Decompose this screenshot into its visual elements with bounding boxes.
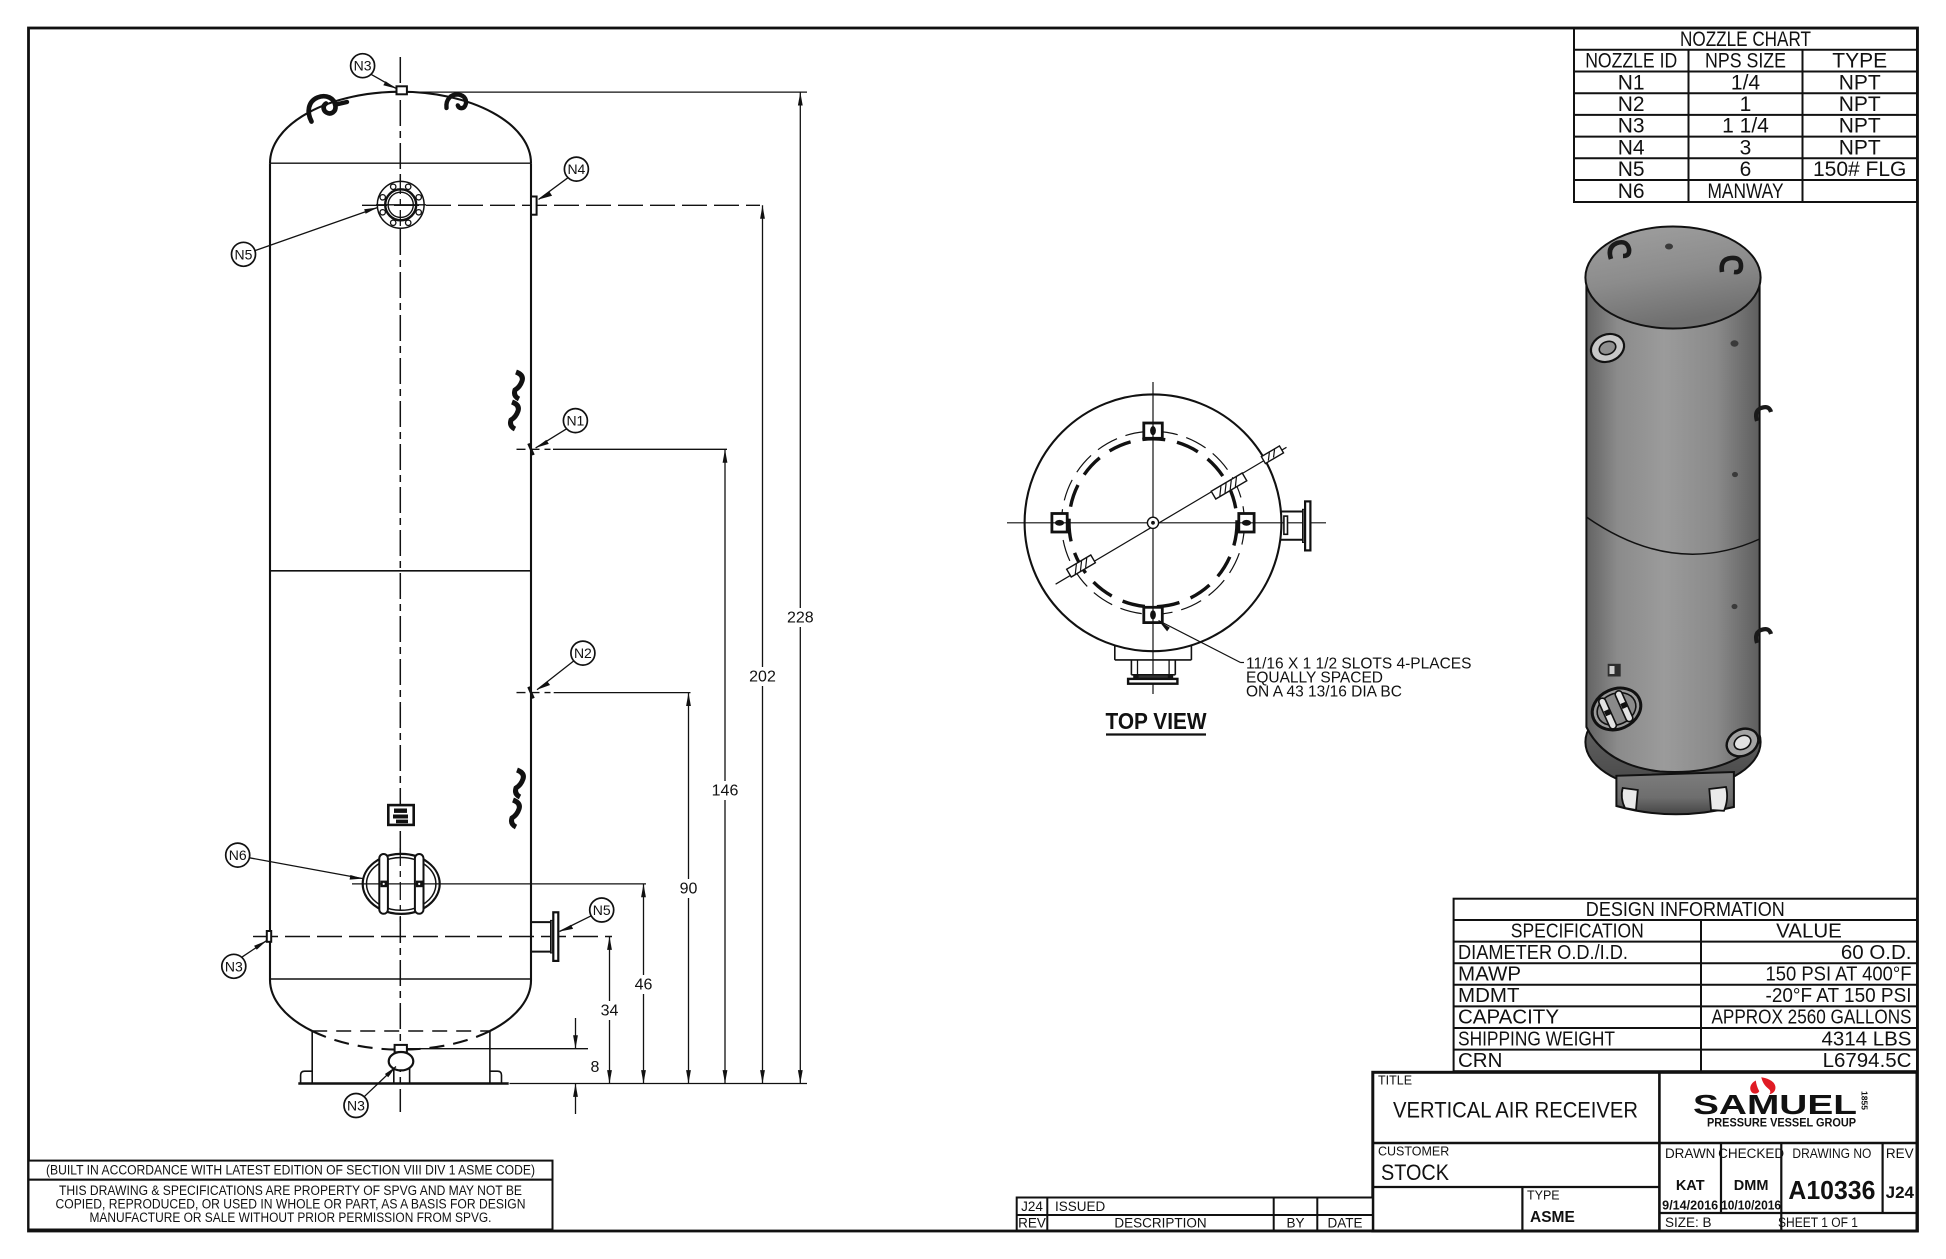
svg-text:N1: N1 xyxy=(1618,71,1645,94)
svg-text:MANUFACTURE OR SALE WITHOUT PR: MANUFACTURE OR SALE WITHOUT PRIOR PERMIS… xyxy=(90,1210,492,1225)
svg-text:ASME: ASME xyxy=(1530,1209,1575,1226)
svg-text:-20°F AT 150 PSI: -20°F AT 150 PSI xyxy=(1766,984,1912,1007)
svg-text:J24: J24 xyxy=(1886,1183,1915,1202)
svg-text:CRN: CRN xyxy=(1458,1049,1502,1072)
svg-text:NPT: NPT xyxy=(1839,136,1881,159)
svg-text:DESCRIPTION: DESCRIPTION xyxy=(1114,1216,1206,1231)
svg-text:BY: BY xyxy=(1286,1216,1304,1231)
svg-text:150# FLG: 150# FLG xyxy=(1813,158,1906,181)
svg-text:DESIGN INFORMATION: DESIGN INFORMATION xyxy=(1586,898,1785,921)
svg-text:TITLE: TITLE xyxy=(1378,1074,1412,1088)
svg-text:CAPACITY: CAPACITY xyxy=(1458,1006,1559,1029)
svg-text:SHEET 1 OF 1: SHEET 1 OF 1 xyxy=(1778,1215,1858,1230)
svg-text:TOP VIEW: TOP VIEW xyxy=(1106,708,1208,734)
svg-text:N1: N1 xyxy=(566,413,584,429)
svg-text:A10336: A10336 xyxy=(1788,1175,1875,1205)
svg-text:60 O.D.: 60 O.D. xyxy=(1841,941,1912,964)
svg-text:NPT: NPT xyxy=(1839,71,1881,94)
svg-text:34: 34 xyxy=(601,1003,619,1020)
svg-text:10/10/2016: 10/10/2016 xyxy=(1721,1199,1781,1213)
svg-text:DRAWN: DRAWN xyxy=(1665,1146,1716,1161)
svg-text:VALUE: VALUE xyxy=(1776,919,1842,942)
svg-text:N5: N5 xyxy=(235,246,253,262)
svg-text:TYPE: TYPE xyxy=(1527,1189,1560,1203)
svg-text:STOCK: STOCK xyxy=(1381,1160,1449,1185)
svg-text:CHECKED: CHECKED xyxy=(1718,1146,1784,1161)
svg-text:NPS SIZE: NPS SIZE xyxy=(1705,50,1786,73)
svg-text:90: 90 xyxy=(680,881,698,898)
svg-text:1 1/4: 1 1/4 xyxy=(1722,115,1769,138)
svg-text:DRAWING NO: DRAWING NO xyxy=(1792,1146,1871,1161)
svg-text:N5: N5 xyxy=(1618,158,1645,181)
svg-text:TYPE: TYPE xyxy=(1832,50,1887,73)
svg-text:228: 228 xyxy=(787,610,814,627)
svg-text:(BUILT IN ACCORDANCE WITH LATE: (BUILT IN ACCORDANCE WITH LATEST EDITION… xyxy=(46,1163,535,1178)
svg-text:N3: N3 xyxy=(354,58,372,74)
svg-text:8: 8 xyxy=(591,1059,600,1076)
svg-text:MANWAY: MANWAY xyxy=(1708,180,1784,203)
svg-text:NPT: NPT xyxy=(1839,115,1881,138)
svg-text:N3: N3 xyxy=(225,958,243,974)
svg-text:1/4: 1/4 xyxy=(1731,71,1761,94)
svg-text:N6: N6 xyxy=(229,847,247,863)
svg-text:1: 1 xyxy=(1740,93,1752,116)
svg-text:ON A 43 13/16 DIA BC: ON A 43 13/16 DIA BC xyxy=(1246,684,1402,701)
svg-text:REV: REV xyxy=(1886,1146,1914,1161)
svg-text:SIZE: B: SIZE: B xyxy=(1665,1215,1712,1230)
svg-text:L6794.5C: L6794.5C xyxy=(1823,1049,1912,1072)
svg-text:DIAMETER O.D./I.D.: DIAMETER O.D./I.D. xyxy=(1458,941,1628,964)
svg-text:DATE: DATE xyxy=(1327,1216,1362,1231)
svg-text:SAMUEL: SAMUEL xyxy=(1693,1089,1857,1120)
svg-text:1855: 1855 xyxy=(1860,1091,1870,1110)
svg-text:9/14/2016: 9/14/2016 xyxy=(1662,1199,1718,1213)
svg-text:NOZZLE CHART: NOZZLE CHART xyxy=(1680,28,1811,51)
svg-text:46: 46 xyxy=(635,977,653,994)
svg-text:NPT: NPT xyxy=(1839,93,1881,116)
svg-text:202: 202 xyxy=(749,669,776,686)
svg-text:6: 6 xyxy=(1740,158,1752,181)
svg-text:DMM: DMM xyxy=(1734,1178,1769,1194)
svg-text:KAT: KAT xyxy=(1676,1178,1705,1194)
svg-text:REV: REV xyxy=(1018,1216,1046,1231)
svg-text:146: 146 xyxy=(712,783,739,800)
svg-text:VERTICAL AIR RECEIVER: VERTICAL AIR RECEIVER xyxy=(1393,1098,1638,1123)
svg-text:N2: N2 xyxy=(1618,93,1645,116)
svg-text:150 PSI AT 400°F: 150 PSI AT 400°F xyxy=(1766,963,1912,986)
svg-text:N2: N2 xyxy=(574,645,592,661)
svg-text:N4: N4 xyxy=(1618,136,1645,159)
svg-text:SPECIFICATION: SPECIFICATION xyxy=(1511,919,1644,942)
svg-text:SHIPPING WEIGHT: SHIPPING WEIGHT xyxy=(1458,1027,1615,1050)
svg-text:N3: N3 xyxy=(347,1098,365,1114)
svg-text:MDMT: MDMT xyxy=(1458,984,1520,1007)
svg-text:3: 3 xyxy=(1740,136,1752,159)
svg-text:J24: J24 xyxy=(1021,1199,1043,1214)
svg-text:N3: N3 xyxy=(1618,115,1645,138)
svg-text:APPROX 2560 GALLONS: APPROX 2560 GALLONS xyxy=(1712,1006,1912,1029)
svg-text:CUSTOMER: CUSTOMER xyxy=(1378,1145,1449,1159)
svg-text:PRESSURE VESSEL GROUP: PRESSURE VESSEL GROUP xyxy=(1707,1118,1856,1130)
svg-text:NOZZLE ID: NOZZLE ID xyxy=(1585,50,1677,73)
svg-text:N4: N4 xyxy=(567,161,585,177)
svg-text:ISSUED: ISSUED xyxy=(1055,1199,1106,1214)
svg-text:4314 LBS: 4314 LBS xyxy=(1821,1027,1911,1050)
svg-text:MAWP: MAWP xyxy=(1458,963,1521,986)
svg-text:N5: N5 xyxy=(593,902,611,918)
svg-text:N6: N6 xyxy=(1618,180,1645,203)
